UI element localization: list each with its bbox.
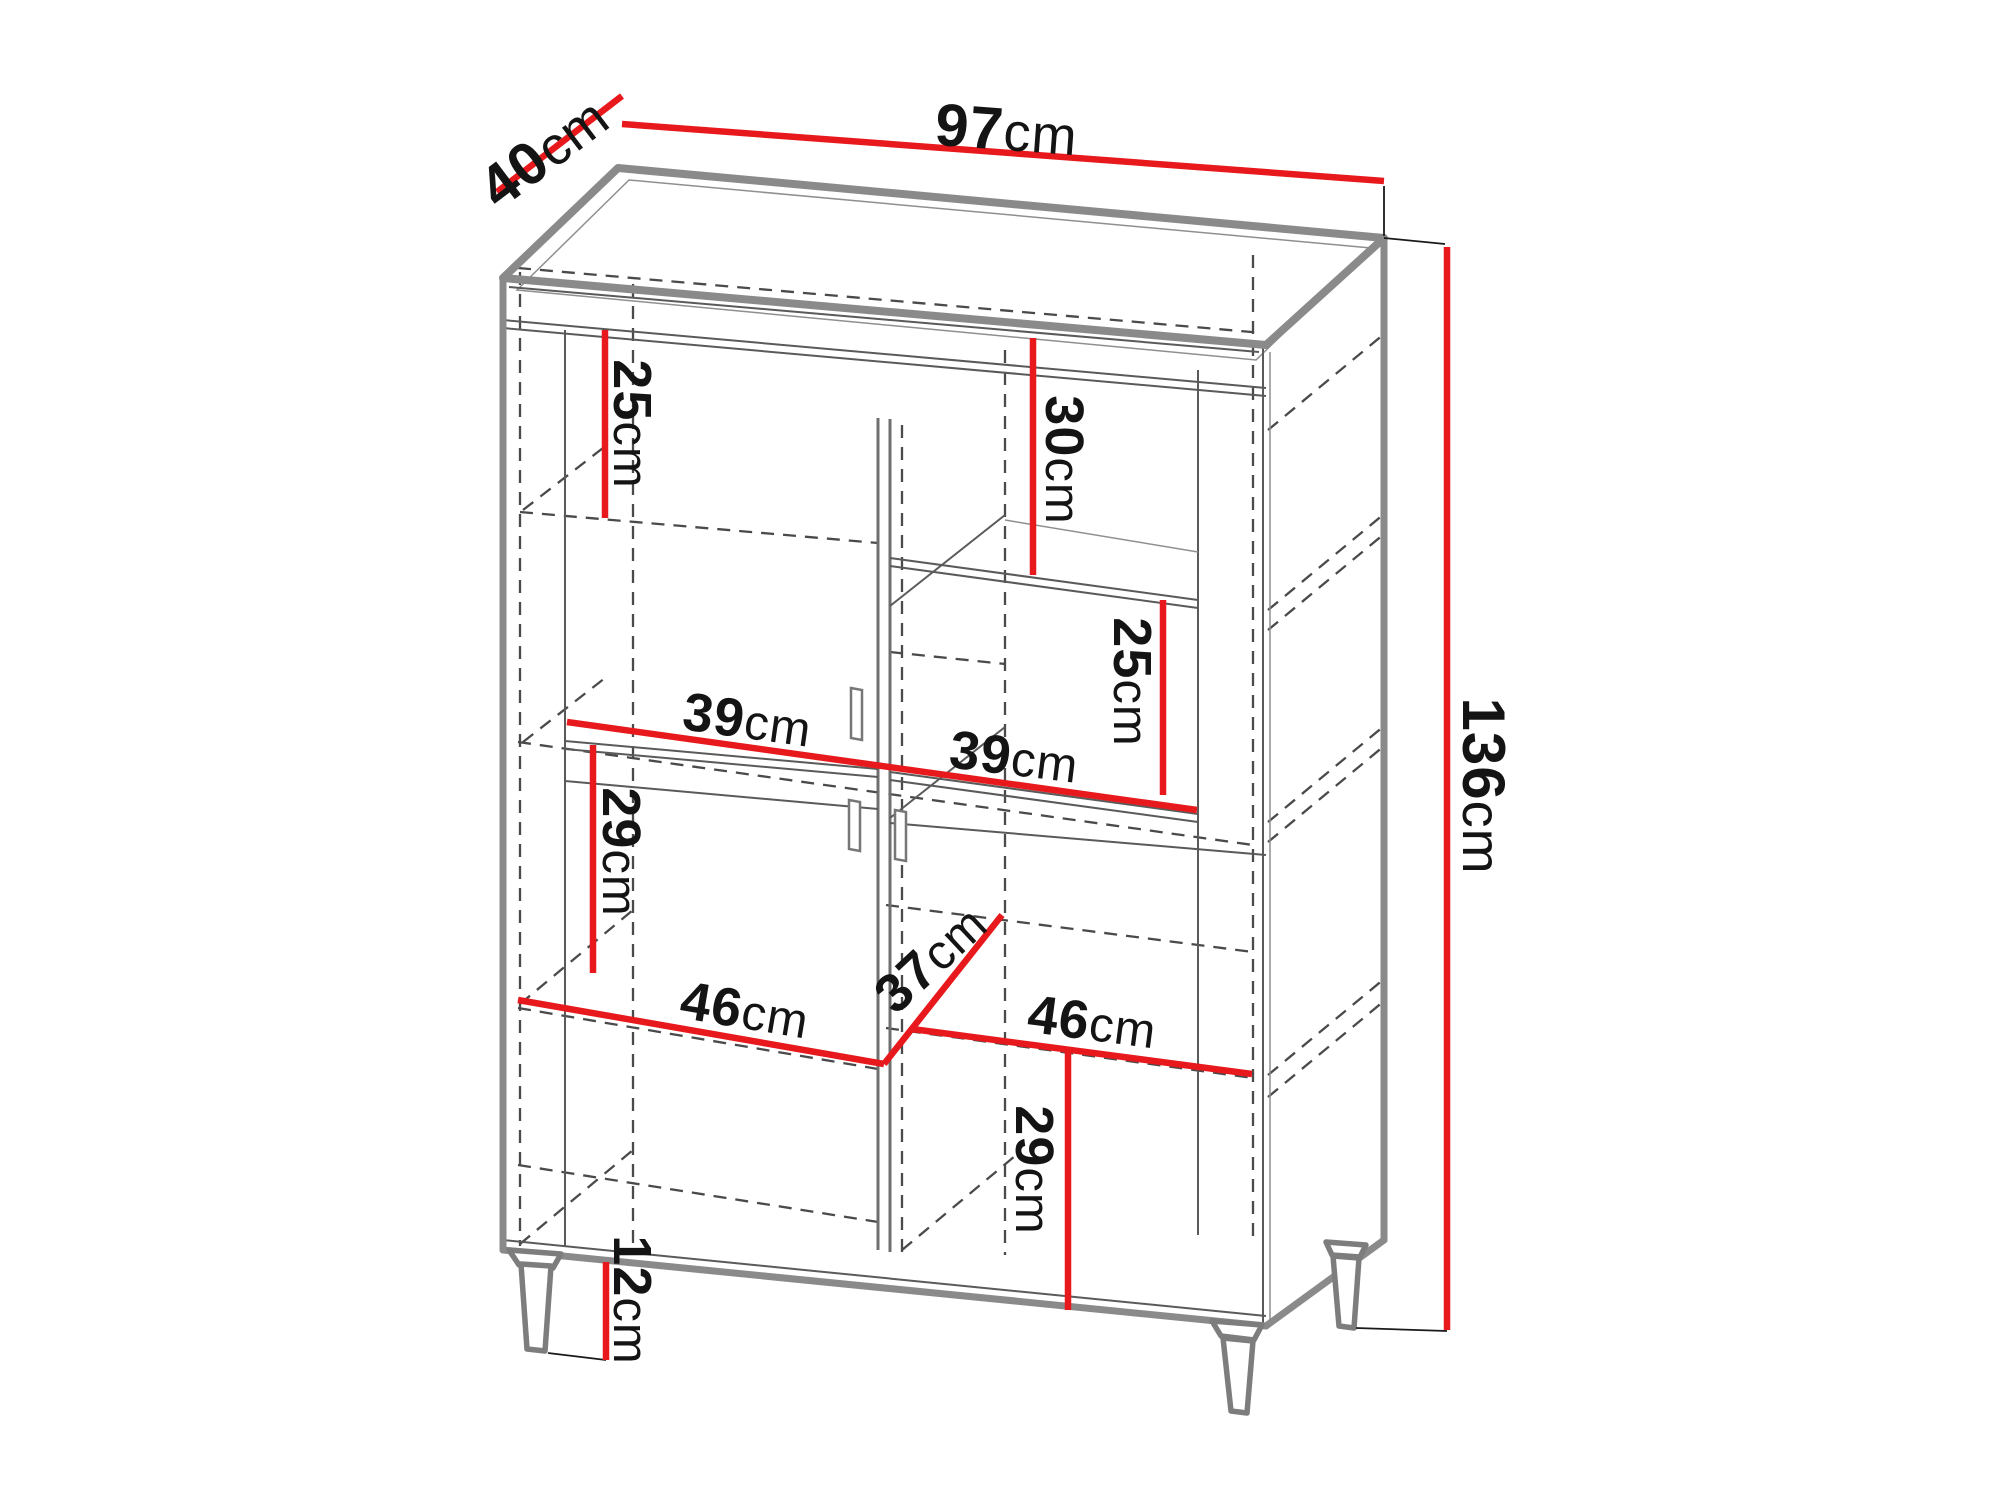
label-door-width-left: 39cm: [679, 681, 815, 758]
label-mid-left-shelf: 29cm: [591, 787, 651, 916]
cabinet-dimension-diagram: 40cm 97cm 136cm 25cm 30cm 25cm 39cm 39cm…: [0, 0, 2000, 1499]
hidden-side-edge: [1268, 534, 1384, 630]
label-top-left-shelf: 25cm: [602, 359, 662, 488]
label-bottom-right-shelf: 29cm: [1004, 1105, 1064, 1234]
hidden-side-edge: [1268, 1001, 1384, 1097]
lower-right-door-handle: [895, 810, 906, 861]
back-right-leg: [1333, 1256, 1359, 1328]
hidden-shelf-edge: [520, 512, 878, 543]
floor-extension-line: [548, 1353, 606, 1360]
front-right-leg: [1223, 1338, 1253, 1413]
label-mid-right-shelf: 25cm: [1102, 617, 1162, 746]
label-height: 136cm: [1450, 697, 1517, 874]
shelf-a-front-edge: [890, 566, 1198, 608]
hidden-depth-edge: [523, 448, 603, 510]
label-top-right-shelf: 30cm: [1034, 395, 1094, 524]
extension-line: [1384, 238, 1445, 244]
upper-door-bottom-edge: [565, 749, 878, 777]
hidden-shelf-edge: [890, 652, 1005, 664]
label-door-width-right: 39cm: [946, 719, 1082, 794]
hidden-depth-edge: [902, 1156, 1015, 1250]
upper-door-handle: [851, 688, 862, 740]
lower-left-door-handle: [849, 800, 860, 851]
hidden-side-edge: [1268, 514, 1384, 610]
hidden-shelf-edge: [518, 1165, 878, 1222]
hidden-depth-edge: [520, 1150, 633, 1244]
cabinet-dimension-diagram-page: 40cm 97cm 136cm 25cm 30cm 25cm 39cm 39cm…: [0, 0, 2000, 1499]
label-depth: 40cm: [467, 82, 621, 221]
label-leg-height: 12cm: [602, 1235, 662, 1364]
hidden-side-edge: [1268, 746, 1384, 842]
hidden-depth-edge: [520, 910, 633, 1004]
lower-door-top-edge: [890, 823, 1266, 855]
front-left-leg: [521, 1264, 551, 1351]
label-width: 97cm: [933, 91, 1080, 168]
hidden-side-edge: [1268, 726, 1384, 822]
bottom-side-edge: [1266, 1240, 1384, 1326]
hidden-side-edge: [1268, 334, 1384, 430]
hidden-side-edge: [1268, 979, 1384, 1075]
floor-extension-line: [1356, 1328, 1447, 1331]
dimension-line-door-39: [567, 722, 1197, 810]
crown-inner-line: [509, 287, 1259, 352]
shelf-a-front-edge: [890, 558, 1198, 600]
dimension-labels: 40cm 97cm 136cm 25cm 30cm 25cm 39cm 39cm…: [467, 82, 1517, 1365]
